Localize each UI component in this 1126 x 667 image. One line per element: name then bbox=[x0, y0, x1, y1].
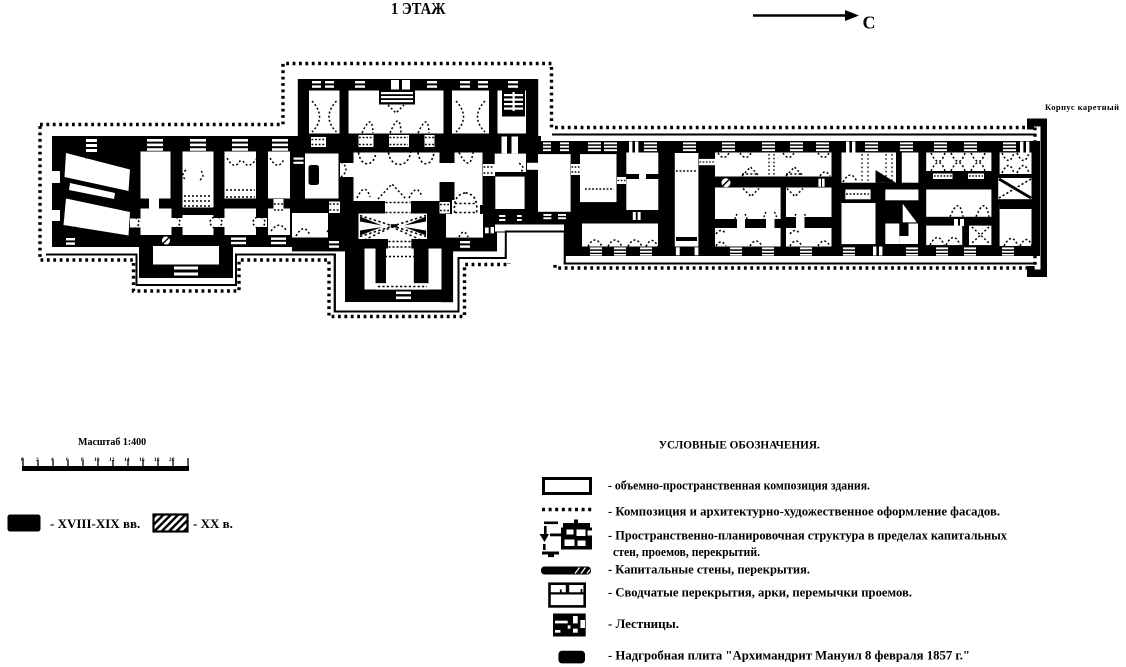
svg-text:Масштаб 1:400: Масштаб 1:400 bbox=[78, 437, 146, 448]
svg-text:- Лестницы.: - Лестницы. bbox=[608, 617, 679, 631]
svg-text:- XVIII-XIX вв.: - XVIII-XIX вв. bbox=[50, 516, 140, 531]
svg-text:6: 6 bbox=[66, 457, 69, 463]
svg-text:2: 2 bbox=[36, 457, 39, 463]
svg-text:1 ЭТАЖ: 1 ЭТАЖ bbox=[391, 0, 446, 18]
svg-text:- Надгробная плита "Архимандри: - Надгробная плита "Архимандрит Мануил 8… bbox=[608, 649, 970, 663]
svg-text:18: 18 bbox=[154, 457, 160, 463]
svg-text:14: 14 bbox=[124, 457, 130, 463]
svg-text:16: 16 bbox=[139, 457, 145, 463]
svg-text:УСЛОВНЫЕ ОБОЗНАЧЕНИЯ.: УСЛОВНЫЕ ОБОЗНАЧЕНИЯ. bbox=[659, 440, 820, 452]
svg-text:4: 4 bbox=[51, 457, 54, 463]
svg-text:- Композиция и архитектурно-ху: - Композиция и архитектурно-художественн… bbox=[608, 505, 1000, 519]
svg-text:- Сводчатые перекрытия, арки,: - Сводчатые перекрытия, арки, перемычки … bbox=[608, 586, 912, 600]
svg-text:С: С bbox=[863, 13, 876, 33]
svg-text:- Капитальные стены, перекрыти: - Капитальные стены, перекрытия. bbox=[608, 563, 810, 577]
svg-text:- XX в.: - XX в. bbox=[193, 516, 233, 531]
svg-text:- объемно-пространственная ком: - объемно-пространственная композиция зд… bbox=[608, 479, 870, 493]
svg-text:стен, проемов, перекрытий.: стен, проемов, перекрытий. bbox=[613, 545, 760, 559]
svg-text:20: 20 bbox=[169, 457, 175, 463]
svg-text:- Пространственно-планировочна: - Пространственно-планировочная структур… bbox=[608, 529, 1008, 543]
svg-text:10: 10 bbox=[94, 457, 100, 463]
svg-text:Корпус каретный: Корпус каретный bbox=[1045, 102, 1119, 112]
svg-text:12: 12 bbox=[109, 457, 115, 463]
svg-text:0: 0 bbox=[21, 457, 24, 463]
svg-text:8: 8 bbox=[81, 457, 84, 463]
